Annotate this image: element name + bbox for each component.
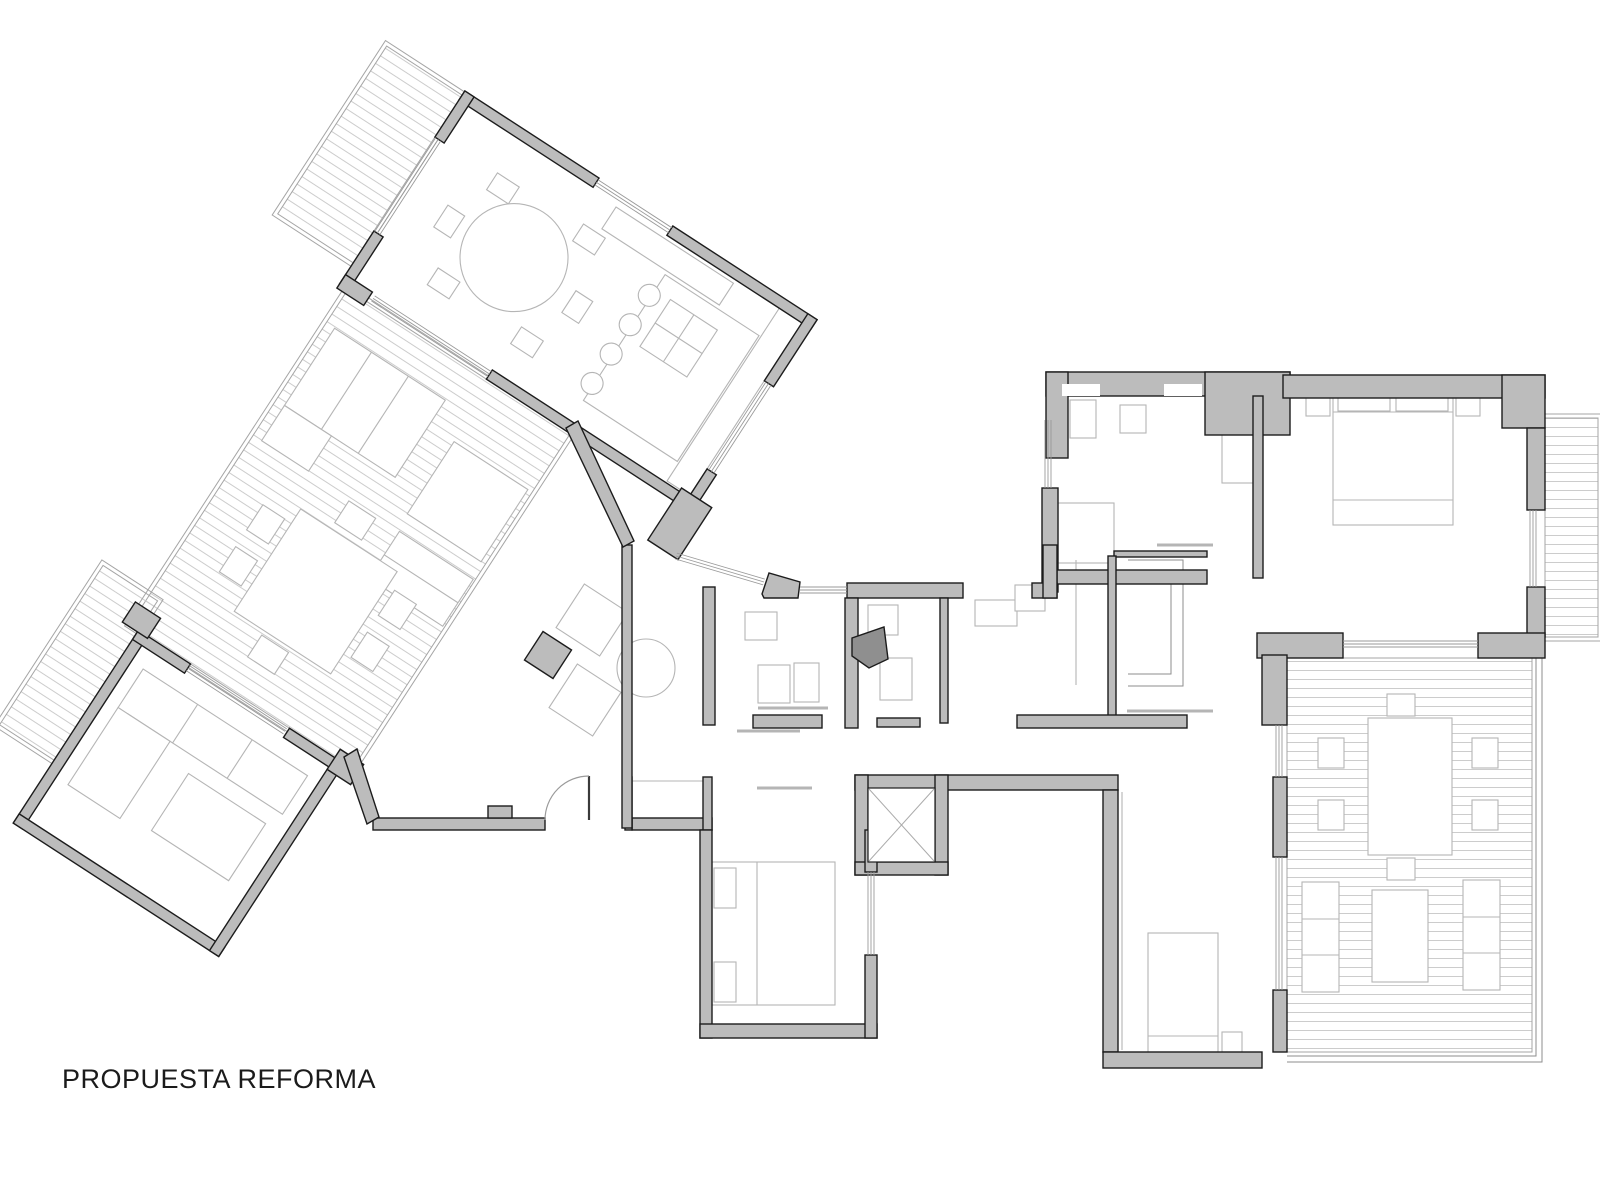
furniture-outline (1372, 890, 1428, 982)
wall-segment (1057, 570, 1207, 584)
furniture-outline (1318, 800, 1344, 830)
plan-title: PROPUESTA REFORMA (62, 1064, 376, 1095)
wall-segment (488, 806, 512, 818)
wall-segment (1108, 556, 1116, 720)
wall-segment (1114, 551, 1207, 557)
pouf-seat (524, 631, 571, 678)
wall-segment (1273, 990, 1287, 1052)
furniture-layer (68, 173, 1542, 1062)
furniture-outline (573, 224, 606, 255)
furniture-outline (562, 291, 593, 324)
wall-segment (1527, 428, 1545, 510)
window-glazing-line (677, 553, 765, 579)
wall-polygon (344, 749, 379, 824)
furniture-outline (1387, 694, 1415, 716)
armchair-outline (549, 664, 621, 736)
window-opening (1062, 384, 1100, 396)
wall-segment (1527, 587, 1545, 637)
furniture-outline (1058, 503, 1114, 563)
wall-segment (622, 545, 632, 828)
thin-detail-polyline (1128, 572, 1171, 674)
terrace-decking-hatch (278, 46, 462, 263)
furniture-outline (794, 663, 819, 702)
wall-segment (1253, 396, 1263, 578)
furniture-outline (1318, 738, 1344, 768)
door-swing-arc (545, 776, 589, 820)
wall-segment (632, 818, 712, 830)
wall-polygon (762, 573, 800, 598)
wall-segment (703, 777, 712, 830)
furniture-outline (1148, 933, 1218, 1052)
furniture-outline (1463, 880, 1500, 990)
wall-segment (1257, 633, 1343, 658)
furniture-outline (1120, 405, 1146, 433)
wall-segment (1017, 715, 1187, 728)
armchair-outline (556, 584, 628, 656)
wall-segment (1043, 545, 1057, 598)
wall-segment (373, 818, 545, 830)
wall-segment (935, 775, 948, 875)
furniture-outline (1222, 1032, 1242, 1052)
wall-segment (1478, 633, 1545, 658)
furniture-outline (1302, 882, 1339, 992)
furniture-outline (1070, 400, 1096, 438)
wall-segment (1262, 655, 1287, 725)
wall-segment (703, 587, 715, 725)
wall-segment (1502, 375, 1545, 428)
furniture-outline (714, 868, 736, 908)
wall-segment (940, 598, 948, 723)
furniture-outline (511, 327, 544, 358)
window-glazing-line (675, 559, 763, 585)
window-opening (1164, 384, 1202, 396)
window-glazing-line (676, 556, 764, 582)
furniture-outline (714, 962, 736, 1002)
wall-segment (459, 91, 599, 187)
furniture-outline (975, 600, 1017, 626)
furniture-outline (1472, 800, 1498, 830)
wall-segment (847, 583, 963, 598)
furniture-outline (487, 173, 520, 204)
wall-segment (1103, 790, 1118, 1052)
wall-segment (1205, 372, 1290, 435)
furniture-outline (1472, 738, 1498, 768)
wall-segment (753, 715, 822, 728)
wall-segment (1273, 777, 1287, 857)
floor-plan-sheet: PROPUESTA REFORMA (0, 0, 1600, 1200)
furniture-outline (434, 205, 465, 238)
furniture-outline (1368, 718, 1452, 855)
furniture-outline (880, 658, 912, 700)
furniture-outline (427, 268, 460, 299)
wall-segment (648, 488, 712, 560)
wall-segment (877, 718, 920, 727)
floor-plan-drawing (0, 0, 1600, 1200)
furniture-outline (758, 665, 790, 703)
wall-segment (1103, 1052, 1262, 1068)
wall-segment (700, 1024, 877, 1038)
terrace-decking-hatch (1545, 418, 1598, 637)
wall-segment (865, 955, 877, 1038)
wall-segment (700, 830, 712, 1038)
furniture-outline (1387, 858, 1415, 880)
furniture-outline (745, 612, 777, 640)
wall-segment (845, 598, 858, 728)
